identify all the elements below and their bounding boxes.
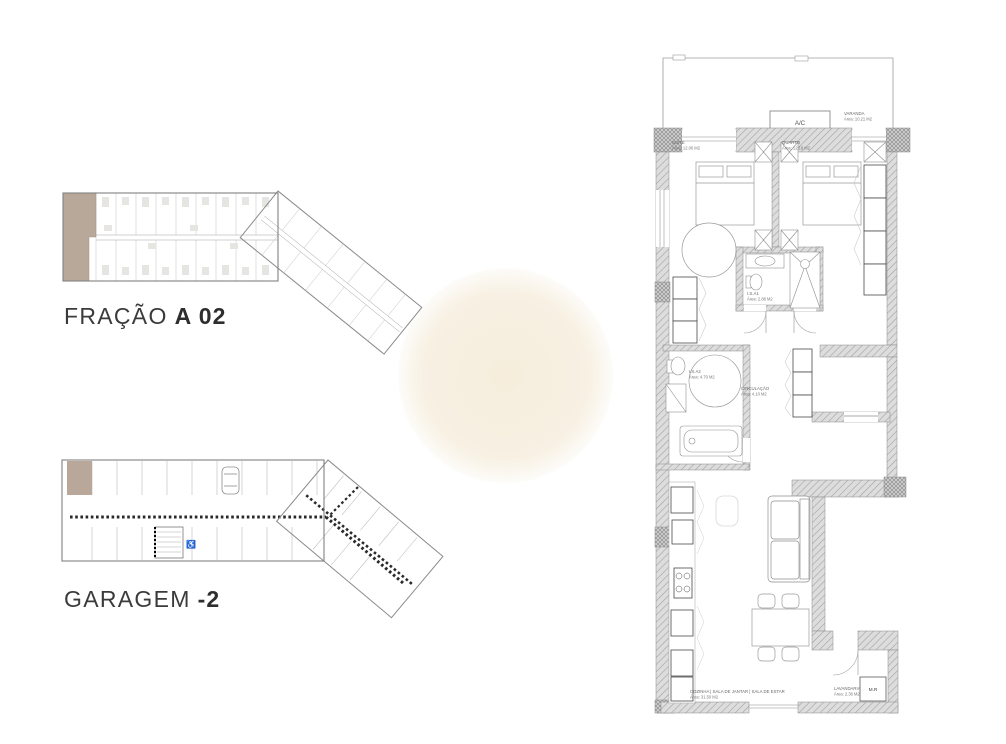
garagem-title-bold: -2 [198, 586, 220, 612]
garagem-title-regular: GARAGEM [64, 586, 191, 612]
floorplan-sheet: FRAÇÃOA 02 [0, 0, 1006, 744]
building-units [96, 193, 278, 281]
label-is1-name: I.S.A1 [747, 291, 759, 296]
suite-closet [673, 277, 706, 343]
fracao-title-bold: A 02 [175, 303, 227, 329]
bathroom-2-fixtures [666, 355, 742, 456]
label-varanda-area: Área: 10.21 M2 [844, 117, 873, 122]
label-circulacao-name: CIRCULAÇÃO [741, 386, 770, 391]
dining-set [752, 594, 809, 661]
label-lavandaria-name: LAVANDARIA [834, 686, 861, 691]
hall-closet [785, 349, 812, 417]
highlighted-parking-space [67, 461, 92, 495]
fracao-title-regular: FRAÇÃO [64, 303, 168, 329]
building-furniture-texture [102, 197, 269, 275]
car-icon [222, 467, 239, 494]
stair-core [155, 527, 183, 558]
fracao-title: FRAÇÃOA 02 [64, 303, 226, 330]
suite-bed [696, 162, 754, 225]
bathtub [680, 426, 742, 456]
label-is1-area: Área: 2.88 M2 [747, 297, 773, 302]
label-quarto-area: Área: 12.18 M2 [782, 146, 811, 151]
highlighted-unit-a02 [63, 193, 96, 281]
label-circulacao-area: Área: 4.10 M2 [741, 392, 767, 397]
garage-stalls [92, 461, 317, 560]
label-suite-area: Área: 12.06 M2 [672, 146, 701, 151]
label-living-area: Área: 31.50 M2 [690, 695, 719, 700]
garagem-title: GARAGEM-2 [64, 586, 220, 613]
shower-1 [790, 252, 820, 308]
label-quarto-name: QUARTO [782, 140, 801, 145]
apartment-plan: A/C [648, 50, 910, 715]
mr-label: M.R [869, 687, 878, 693]
label-varanda-name: VARANDA [844, 111, 865, 116]
label-lavandaria-area: Área: 2.36 M2 [834, 692, 860, 697]
garage-wing [277, 460, 443, 618]
kitchen-counter [669, 482, 704, 703]
accessibility-icon: ♿ [186, 539, 196, 549]
washing-machine-box: M.R [860, 677, 886, 701]
label-is2-name: I.S.A2 [689, 369, 701, 374]
sofa [768, 496, 810, 582]
hob [674, 568, 692, 598]
ac-label: A/C [795, 120, 806, 127]
label-is2-area: Área: 4.70 M2 [689, 375, 715, 380]
label-living-name: COZINHA | SALA DE JANTAR | SALA DE ESTAR [690, 689, 785, 694]
round-tub [689, 355, 741, 407]
label-suite-name: SUÍTE [672, 140, 685, 145]
suite-round-chair [682, 223, 736, 277]
coffee-table [716, 496, 738, 526]
quarto-bed [803, 162, 861, 225]
building-overview-plan [58, 185, 438, 365]
